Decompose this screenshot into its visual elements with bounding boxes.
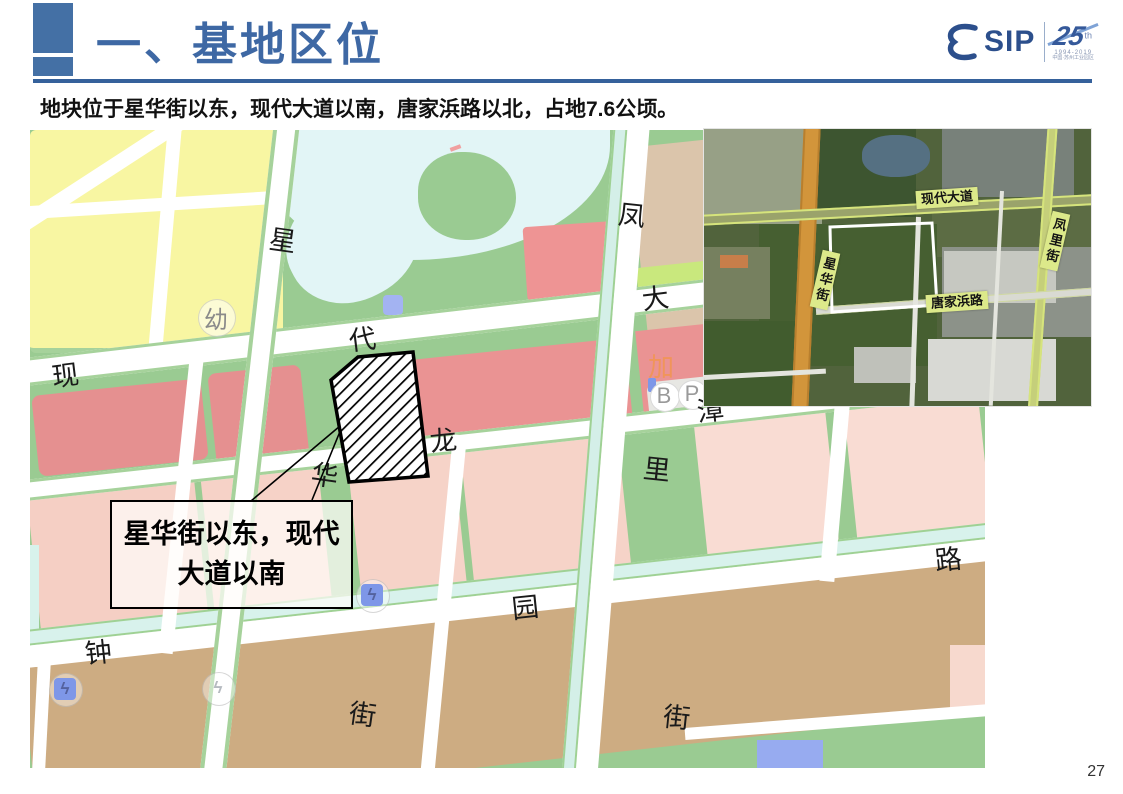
callout-line1: 星华街以东，现代 [124, 515, 340, 554]
title-decoration-square [33, 3, 73, 53]
leader-line [312, 429, 341, 500]
title-decoration-rect [33, 57, 73, 76]
zoning-map: 幼 加 B P ϟ ϟ ϟ 星 华 街 现 代 大 凤 里 街 龙 漳 钟 园 … [30, 130, 985, 768]
page-title: 一、基地区位 [96, 8, 384, 73]
sip-swirl-icon [942, 22, 982, 62]
site-callout: 星华街以东，现代 大道以南 [110, 500, 353, 609]
anniversary-th: th [1084, 31, 1092, 41]
site-hatched-polygon [331, 352, 428, 482]
sip-logo: SIP 25th 1994-2019 中国·苏州工业园区 [942, 16, 1117, 68]
logo-divider [1044, 22, 1045, 62]
intro-text: 地块位于星华街以东，现代大道以南，唐家浜路以北，占地7.6公顷。 [40, 93, 678, 123]
callout-line2: 大道以南 [178, 555, 286, 594]
anniversary-org: 中国·苏州工业园区 [1052, 56, 1094, 61]
sip-logo-text: SIP [984, 25, 1035, 59]
site-overlay [30, 130, 985, 768]
slide: 一、基地区位 SIP 25th 1994-2019 中国·苏州工业园区 地块位于… [0, 0, 1123, 794]
anniversary-mark: 25th 1994-2019 中国·苏州工业园区 [1052, 23, 1094, 61]
anniversary-25: 25 [1052, 23, 1088, 50]
page-number: 27 [1087, 763, 1105, 781]
header-rule [33, 79, 1092, 83]
